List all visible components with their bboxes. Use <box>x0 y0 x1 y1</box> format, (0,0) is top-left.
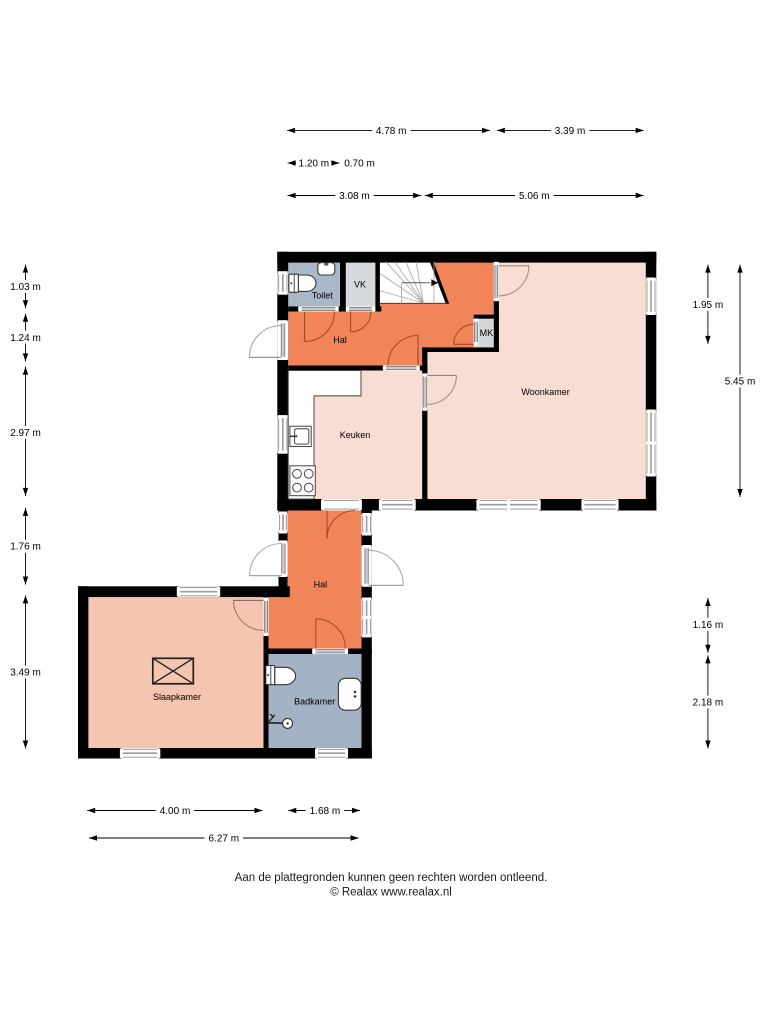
svg-text:Aan de plattegronden kunnen ge: Aan de plattegronden kunnen geen rechten… <box>235 872 548 884</box>
svg-text:1.76 m: 1.76 m <box>10 542 41 553</box>
svg-text:5.45 m: 5.45 m <box>725 377 756 388</box>
svg-text:Keuken: Keuken <box>340 430 371 440</box>
svg-text:Hal: Hal <box>333 335 347 345</box>
svg-text:1.20 m: 1.20 m <box>299 159 330 170</box>
svg-text:1.16 m: 1.16 m <box>693 620 724 631</box>
svg-text:MK: MK <box>480 328 494 338</box>
svg-text:5.06 m: 5.06 m <box>519 191 550 202</box>
svg-text:3.08 m: 3.08 m <box>339 191 370 202</box>
svg-text:Woonkamer: Woonkamer <box>521 387 569 397</box>
svg-text:Badkamer: Badkamer <box>294 696 335 706</box>
svg-text:1.68 m: 1.68 m <box>310 806 341 817</box>
svg-text:4.00 m: 4.00 m <box>160 806 191 817</box>
svg-text:4.78 m: 4.78 m <box>376 126 407 137</box>
svg-text:3.39 m: 3.39 m <box>555 126 586 137</box>
svg-text:1.24 m: 1.24 m <box>10 333 41 344</box>
svg-text:2.97 m: 2.97 m <box>10 428 41 439</box>
svg-text:Hal: Hal <box>314 580 328 590</box>
svg-text:VK: VK <box>354 279 366 289</box>
svg-text:1.03 m: 1.03 m <box>10 282 41 293</box>
svg-text:Toilet: Toilet <box>312 290 334 300</box>
svg-text:1.95 m: 1.95 m <box>693 300 724 311</box>
svg-text:Slaapkamer: Slaapkamer <box>153 692 201 702</box>
svg-text:6.27 m: 6.27 m <box>209 834 240 845</box>
svg-text:0.70 m: 0.70 m <box>344 159 375 170</box>
svg-text:2.18 m: 2.18 m <box>693 698 724 709</box>
svg-text:© Realax www.realax.nl: © Realax www.realax.nl <box>330 887 452 899</box>
svg-text:3.49 m: 3.49 m <box>10 668 41 679</box>
